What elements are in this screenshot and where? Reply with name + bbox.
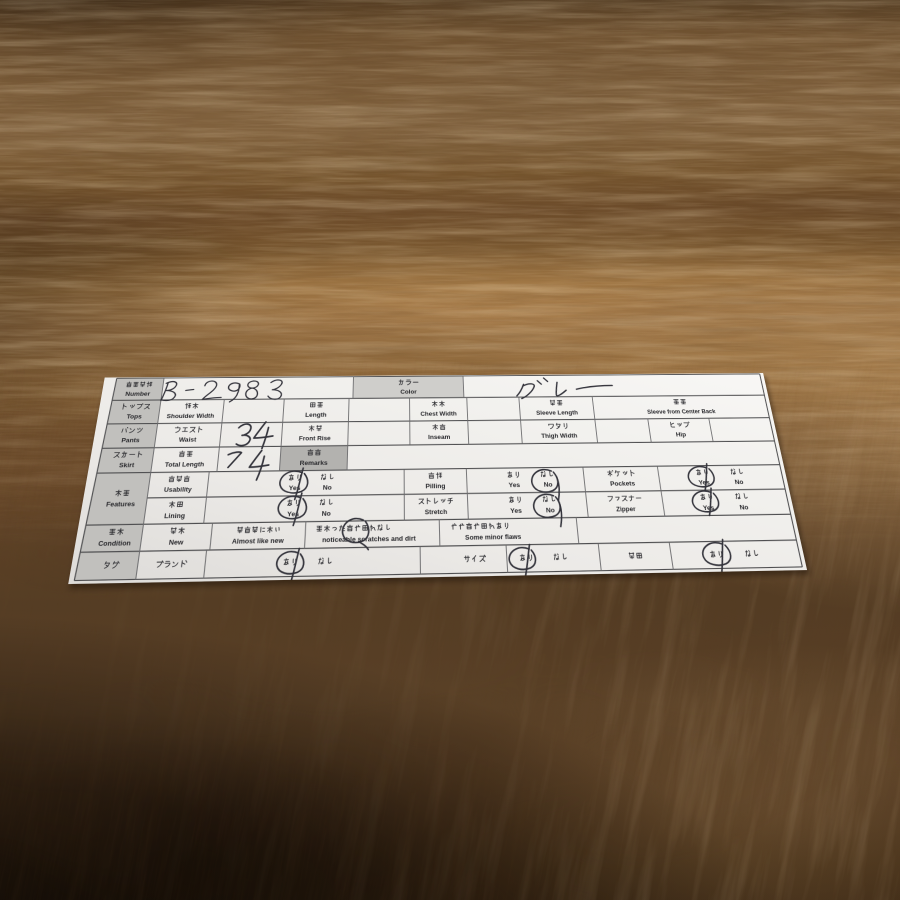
svg-text:New: New xyxy=(168,539,184,547)
svg-text:Color: Color xyxy=(400,390,417,396)
svg-text:Pockets: Pockets xyxy=(610,481,636,488)
svg-text:Sleeve Length: Sleeve Length xyxy=(536,410,579,417)
svg-text:Yes: Yes xyxy=(510,508,522,515)
svg-text:Tops: Tops xyxy=(126,414,142,421)
svg-text:Chest Width: Chest Width xyxy=(420,411,457,418)
svg-text:Pants: Pants xyxy=(121,438,140,445)
svg-text:No: No xyxy=(322,511,332,518)
svg-text:Skirt: Skirt xyxy=(118,463,134,470)
svg-text:Total Length: Total Length xyxy=(164,462,205,469)
svg-text:Lining: Lining xyxy=(164,513,186,521)
svg-text:Remarks: Remarks xyxy=(299,460,327,467)
svg-text:Condition: Condition xyxy=(98,540,132,548)
svg-text:Some minor flaws: Some minor flaws xyxy=(465,534,522,542)
svg-text:Yes: Yes xyxy=(509,483,521,490)
svg-text:Sleeve from Center Back: Sleeve from Center Back xyxy=(647,409,716,416)
svg-text:No: No xyxy=(739,504,750,511)
svg-text:Stretch: Stretch xyxy=(425,509,448,516)
svg-text:No: No xyxy=(323,485,333,492)
svg-text:Hip: Hip xyxy=(676,432,688,439)
svg-text:Waist: Waist xyxy=(178,437,196,444)
svg-text:Features: Features xyxy=(105,501,135,509)
svg-text:Usability: Usability xyxy=(163,487,193,494)
svg-text:No: No xyxy=(546,507,556,514)
svg-text:No: No xyxy=(544,482,554,489)
svg-text:Number: Number xyxy=(125,392,152,399)
svg-text:Thigh Width: Thigh Width xyxy=(541,433,578,440)
svg-text:Pilling: Pilling xyxy=(425,484,446,491)
svg-text:noticeable scratches and dirt: noticeable scratches and dirt xyxy=(322,536,416,545)
svg-text:Almost like new: Almost like new xyxy=(231,538,284,546)
svg-text:Shoulder Width: Shoulder Width xyxy=(166,413,215,420)
svg-text:Zipper: Zipper xyxy=(616,506,637,513)
svg-text:Inseam: Inseam xyxy=(428,435,450,442)
svg-text:No: No xyxy=(734,480,744,487)
svg-text:Length: Length xyxy=(305,412,327,419)
svg-text:Front Rise: Front Rise xyxy=(299,436,331,443)
